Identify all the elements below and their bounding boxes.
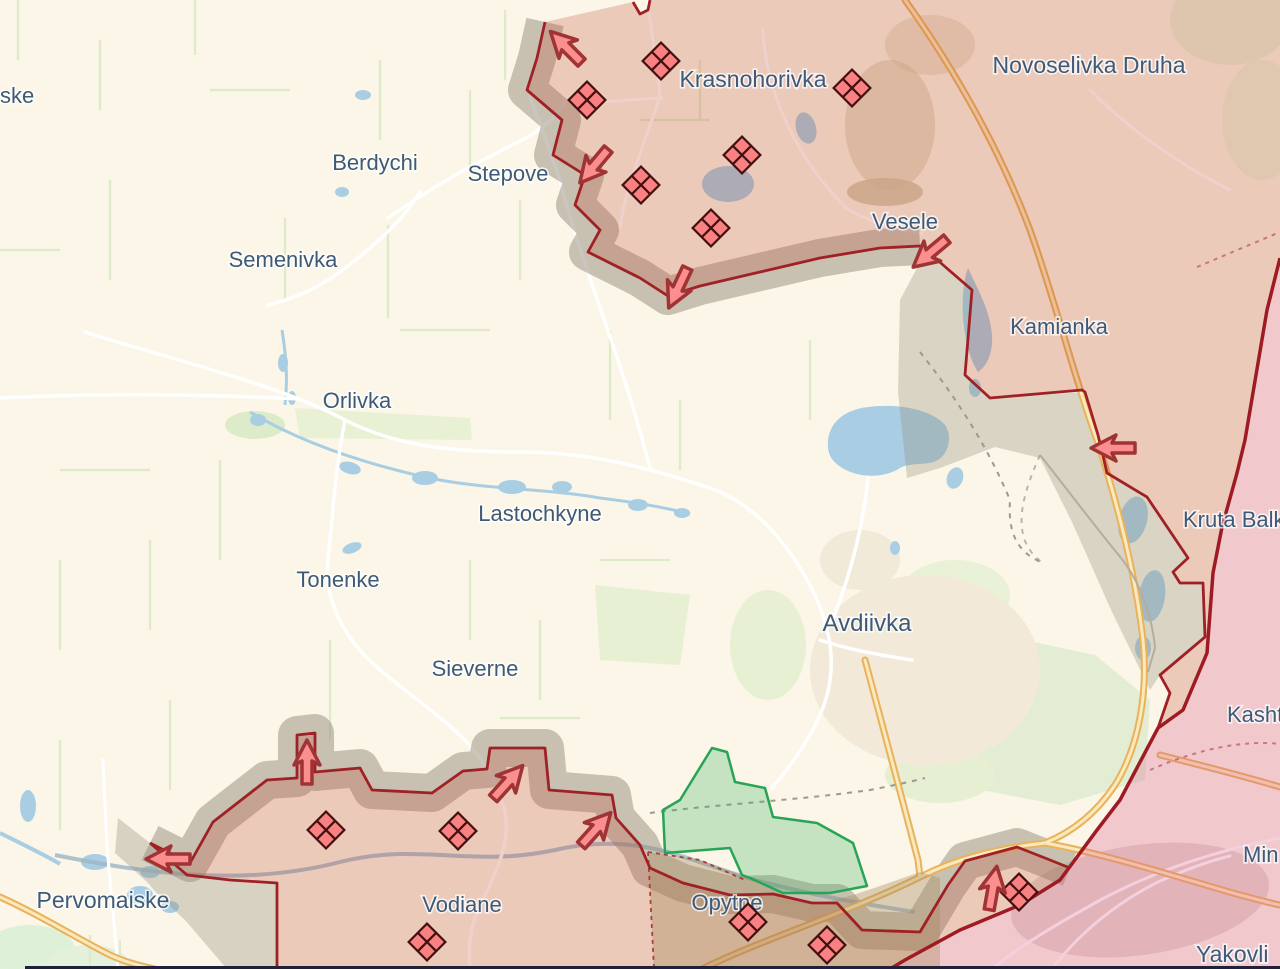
place-label-kamianka: Kamianka [1010,314,1109,339]
place-label-yakovlivka: Yakovli [1196,941,1268,967]
place-label-orlivka: Orlivka [323,388,392,413]
place-label-novoselivka-druha: Novoselivka Druha [992,52,1185,78]
place-label-vesele: Vesele [872,209,938,234]
place-label-vodiane: Vodiane [422,892,502,917]
place-label-semenivka: Semenivka [229,247,339,272]
place-label-pervomaiske: Pervomaiske [37,887,170,913]
place-label-mineralne: Min [1243,842,1278,867]
place-label-tonenke: Tonenke [296,567,379,592]
place-label-sieverne: Sieverne [432,656,519,681]
place-label-lastochkyne: Lastochkyne [478,501,602,526]
place-label-berdychi: Berdychi [332,150,418,175]
place-label-kruta-balka: Kruta Balk [1183,507,1280,532]
map-viewport[interactable]: skeBerdychiStepoveSemenivkaKrasnohorivka… [0,0,1280,969]
place-label-kashtanove: Kasht [1227,702,1280,727]
place-label-avdiivka: Avdiivka [823,610,913,637]
map-canvas[interactable]: skeBerdychiStepoveSemenivkaKrasnohorivka… [0,0,1280,969]
place-label-krasnohorivka: Krasnohorivka [679,66,826,92]
place-label-ske: ske [0,83,34,108]
place-label-stepove: Stepove [468,161,549,186]
